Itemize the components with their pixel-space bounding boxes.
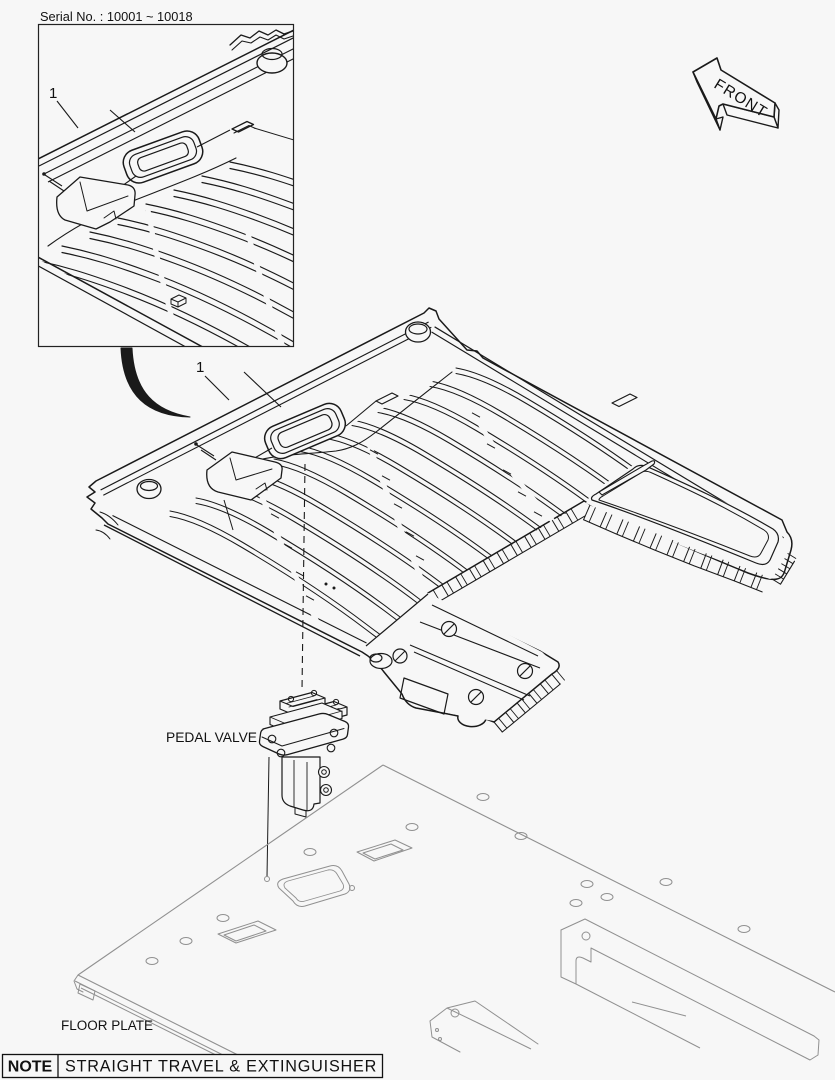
- svg-text:STRAIGHT TRAVEL & EXTINGUISHER: STRAIGHT TRAVEL & EXTINGUISHER: [65, 1058, 377, 1076]
- svg-text:FLOOR PLATE: FLOOR PLATE: [61, 1018, 153, 1033]
- svg-text:1: 1: [196, 359, 204, 376]
- svg-text:PEDAL VALVE: PEDAL VALVE: [166, 730, 257, 745]
- svg-text:1: 1: [49, 85, 57, 102]
- svg-text:NOTE: NOTE: [8, 1059, 53, 1076]
- svg-text:Serial No. : 10001 ~ 10018: Serial No. : 10001 ~ 10018: [40, 9, 193, 24]
